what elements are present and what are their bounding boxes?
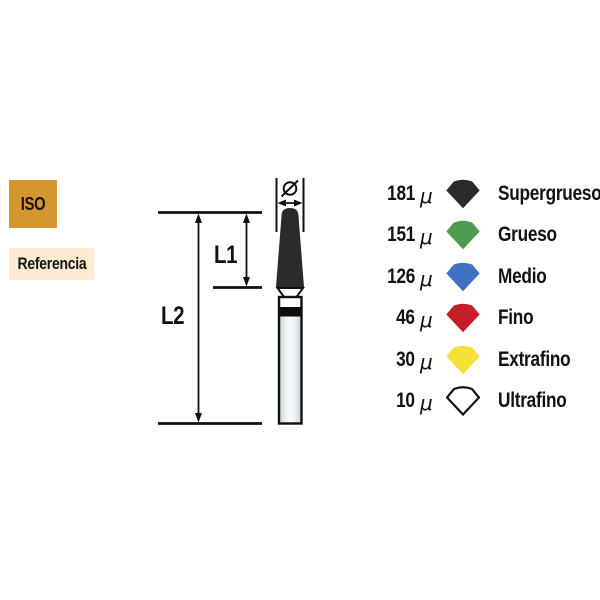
diameter-dimension-arrow: [278, 200, 303, 207]
diamond-icon: [446, 220, 480, 250]
grit-label: Ultrafino: [498, 389, 567, 413]
diamond-icon: [446, 345, 480, 375]
diamond-icon: [446, 262, 480, 292]
grit-legend: 181 μ Supergrueso 151 μ Grueso 126 μ Med…: [377, 173, 600, 422]
legend-row: 10 μ Ultrafino: [377, 381, 600, 423]
grit-size-value: 46: [396, 306, 415, 330]
shank-ring-band: [279, 307, 302, 317]
diameter-symbol-icon: [282, 181, 299, 197]
legend-row: 151 μ Grueso: [377, 215, 600, 257]
micron-symbol: μ: [420, 308, 437, 332]
legend-row: 30 μ Extrafino: [377, 339, 600, 381]
micron-symbol: μ: [420, 350, 437, 374]
grit-label: Grueso: [498, 223, 557, 247]
bur-dimension-diagram: L2 L1: [140, 155, 340, 445]
diagram-canvas: ISO Referencia L2 L1: [0, 0, 600, 600]
grit-size-value: 126: [387, 265, 415, 289]
referencia-label: Referencia: [17, 254, 86, 274]
referencia-badge: Referencia: [9, 248, 94, 280]
l2-dimension-arrow: [195, 214, 202, 423]
iso-label: ISO: [21, 194, 46, 215]
l1-dimension-arrow: [243, 214, 250, 287]
legend-row: 46 μ Fino: [377, 298, 600, 340]
iso-badge: ISO: [9, 180, 57, 228]
shank-collar: [281, 299, 301, 308]
grit-size-value: 10: [396, 389, 415, 413]
legend-row: 126 μ Medio: [377, 256, 600, 298]
bur-head: [277, 209, 304, 288]
grit-label: Fino: [498, 306, 533, 330]
grit-size-value: 151: [387, 223, 415, 247]
micron-symbol: μ: [420, 225, 437, 249]
diamond-icon: [446, 303, 480, 333]
grit-label: Extrafino: [498, 348, 570, 372]
bur-neck: [278, 288, 304, 297]
l1-label: L1: [214, 240, 238, 268]
l2-label: L2: [161, 301, 184, 329]
grit-size-value: 30: [396, 348, 415, 372]
grit-label: Supergrueso: [498, 182, 600, 206]
grit-label: Medio: [498, 265, 547, 289]
micron-symbol: μ: [420, 184, 437, 208]
micron-symbol: μ: [420, 267, 437, 291]
diamond-icon: [446, 179, 480, 209]
micron-symbol: μ: [420, 391, 437, 415]
legend-row: 181 μ Supergrueso: [377, 173, 600, 215]
diamond-icon: [446, 386, 480, 416]
grit-size-value: 181: [387, 182, 415, 206]
